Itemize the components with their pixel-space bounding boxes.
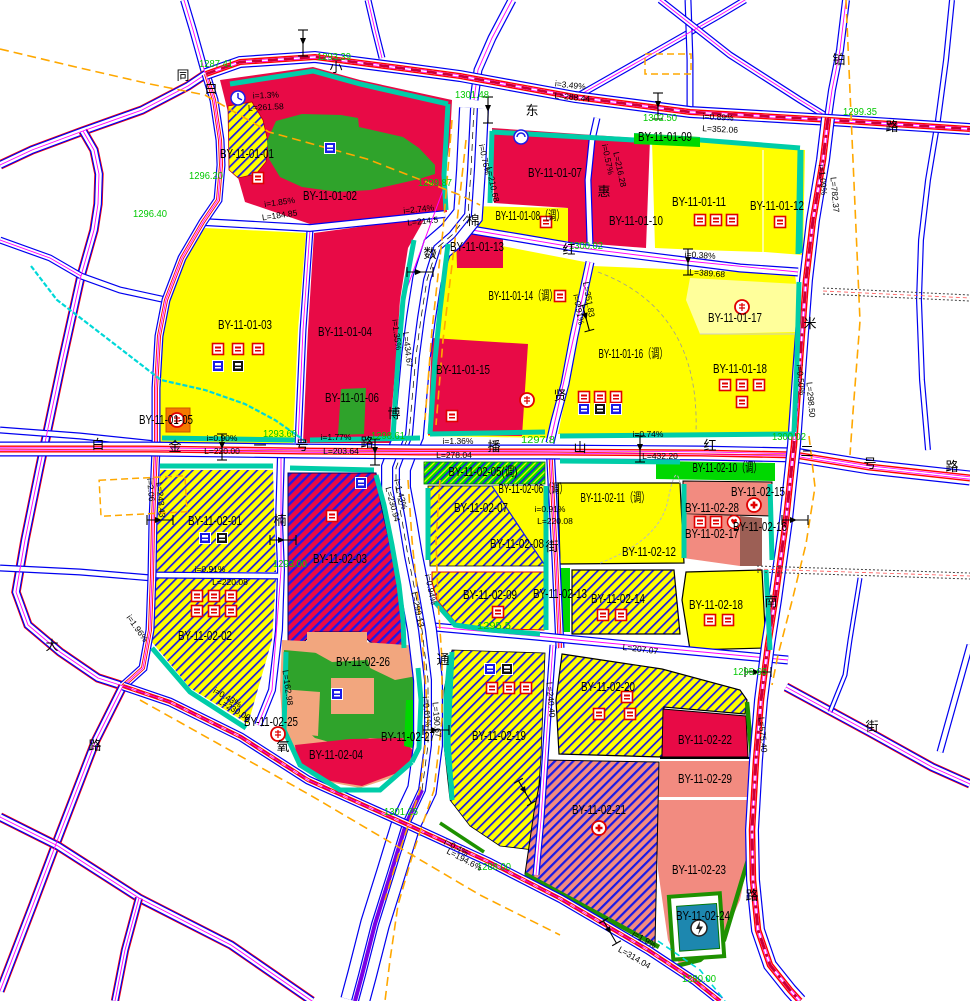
svg-text:BY-11-02-18: BY-11-02-18 — [689, 597, 743, 612]
svg-text:路: 路 — [88, 738, 101, 753]
svg-text:路: 路 — [360, 435, 373, 450]
svg-text:i=1.36%: i=1.36% — [443, 436, 474, 446]
svg-text:L=432.20: L=432.20 — [642, 451, 678, 461]
svg-text:铂: 铂 — [832, 52, 845, 67]
svg-text:路: 路 — [745, 888, 758, 903]
svg-text:楠: 楠 — [273, 513, 286, 528]
svg-text:1297.8: 1297.8 — [521, 435, 555, 446]
svg-text:BY-11-02-25: BY-11-02-25 — [244, 714, 298, 729]
svg-text:BY-11-01-13: BY-11-01-13 — [450, 239, 504, 254]
svg-text:BY-11-02-23: BY-11-02-23 — [672, 862, 726, 877]
svg-text:号: 号 — [863, 456, 876, 471]
svg-text:BY-11-01-12: BY-11-01-12 — [750, 198, 804, 213]
svg-text:金: 金 — [168, 439, 181, 454]
svg-text:1296.40: 1296.40 — [133, 209, 167, 220]
svg-text:大: 大 — [45, 638, 58, 653]
svg-text:BY-11-01-04: BY-11-01-04 — [318, 324, 372, 339]
svg-text:白: 白 — [204, 81, 217, 96]
svg-text:BY-11-02-09: BY-11-02-09 — [463, 587, 517, 602]
svg-text:1280.00: 1280.00 — [682, 974, 716, 985]
svg-text:山: 山 — [573, 440, 586, 455]
svg-text:i=0.74%: i=0.74% — [633, 429, 664, 439]
svg-text:BY-11-01-09: BY-11-01-09 — [638, 129, 692, 144]
svg-text:BY-11-01-07: BY-11-01-07 — [528, 165, 582, 180]
svg-text:BY-11-02-15: BY-11-02-15 — [731, 484, 785, 499]
svg-text:BY-11-02-10（调）: BY-11-02-10（调） — [693, 460, 762, 475]
svg-text:BY-11-01-11: BY-11-01-11 — [672, 194, 726, 209]
svg-text:1293.60: 1293.60 — [263, 429, 297, 440]
svg-text:氧: 氧 — [276, 739, 289, 754]
svg-text:1302.50: 1302.50 — [643, 113, 677, 124]
svg-text:BY-11-02-04: BY-11-02-04 — [309, 747, 363, 762]
svg-text:L=220.08: L=220.08 — [212, 577, 248, 587]
svg-text:1301.25: 1301.25 — [384, 807, 418, 818]
svg-text:米: 米 — [803, 316, 816, 331]
svg-text:BY-11-02-27: BY-11-02-27 — [381, 729, 435, 744]
svg-text:BY-11-01-03: BY-11-01-03 — [218, 317, 272, 332]
svg-text:BY-11-01-08（调）: BY-11-01-08（调） — [496, 208, 565, 223]
svg-text:白: 白 — [91, 437, 104, 452]
svg-text:L=203.64: L=203.64 — [323, 446, 359, 456]
svg-text:东: 东 — [525, 103, 538, 118]
svg-text:BY-11-01-18: BY-11-01-18 — [713, 361, 767, 376]
svg-text:i=1.3%: i=1.3% — [252, 89, 279, 100]
svg-text:数: 数 — [423, 246, 436, 261]
svg-text:BY-11-02-12: BY-11-02-12 — [622, 544, 676, 559]
svg-text:BY-11-02-19: BY-11-02-19 — [472, 728, 526, 743]
svg-text:L=261.58: L=261.58 — [248, 101, 284, 113]
svg-text:通: 通 — [436, 652, 449, 667]
svg-text:1296.20: 1296.20 — [189, 171, 223, 182]
svg-text:BY-11-01-15: BY-11-01-15 — [436, 362, 490, 377]
svg-text:BY-11-02-20: BY-11-02-20 — [581, 679, 635, 694]
svg-text:1300.02: 1300.02 — [772, 432, 806, 443]
svg-text:BY-11-02-01: BY-11-02-01 — [188, 513, 242, 528]
svg-text:1287.41: 1287.41 — [199, 59, 233, 70]
svg-text:一: 一 — [253, 438, 266, 453]
svg-text:BY-11-02-26: BY-11-02-26 — [336, 654, 390, 669]
svg-text:BY-11-02-13: BY-11-02-13 — [533, 586, 587, 601]
svg-text:1295.5: 1295.5 — [477, 621, 511, 632]
svg-text:BY-11-01-01: BY-11-01-01 — [220, 146, 274, 161]
svg-text:BY-11-02-16: BY-11-02-16 — [733, 519, 787, 534]
svg-text:BY-11-01-16（调）: BY-11-01-16（调） — [599, 346, 668, 361]
svg-text:路: 路 — [885, 119, 898, 134]
svg-text:BY-11-02-03: BY-11-02-03 — [313, 551, 367, 566]
svg-text:BY-11-01-10: BY-11-01-10 — [609, 213, 663, 228]
svg-text:i=0.89%: i=0.89% — [702, 111, 734, 123]
svg-text:播: 播 — [487, 439, 500, 454]
svg-text:i=0.91%: i=0.91% — [195, 564, 226, 574]
svg-text:BY-11-02-29: BY-11-02-29 — [678, 771, 732, 786]
svg-text:1299.87: 1299.87 — [418, 178, 452, 189]
svg-text:BY-11-01-17: BY-11-01-17 — [708, 310, 762, 325]
svg-text:BY-11-02-06（调）: BY-11-02-06（调） — [499, 481, 568, 496]
svg-text:BY-11-02-11（调）: BY-11-02-11（调） — [581, 490, 650, 505]
svg-text:BY-11-01-14（调）: BY-11-01-14（调） — [489, 288, 558, 303]
svg-text:1295.65: 1295.65 — [733, 667, 767, 678]
svg-text:BY-11-02-14: BY-11-02-14 — [591, 591, 645, 606]
svg-text:三: 三 — [800, 444, 813, 459]
svg-text:i=0.91%: i=0.91% — [535, 504, 566, 514]
svg-text:BY-11-01-02: BY-11-01-02 — [303, 188, 357, 203]
svg-text:红: 红 — [562, 242, 575, 257]
svg-text:贤: 贤 — [553, 388, 566, 403]
svg-text:BY-11-01-05: BY-11-01-05 — [139, 412, 193, 427]
svg-text:BY-11-02-05(调): BY-11-02-05(调) — [449, 464, 518, 479]
svg-text:1298.61: 1298.61 — [371, 431, 405, 442]
svg-text:1301.48: 1301.48 — [455, 90, 489, 101]
svg-text:BY-11-02-21: BY-11-02-21 — [572, 802, 626, 817]
svg-text:街: 街 — [865, 719, 878, 734]
svg-text:BY-11-02-07: BY-11-02-07 — [454, 500, 508, 515]
svg-text:1293.00: 1293.00 — [273, 559, 307, 570]
svg-text:小: 小 — [329, 60, 342, 75]
svg-text:L=278.04: L=278.04 — [436, 450, 472, 460]
svg-text:BY-11-02-17: BY-11-02-17 — [685, 526, 739, 541]
svg-text:同: 同 — [176, 68, 189, 83]
svg-text:南: 南 — [764, 594, 777, 609]
svg-text:L=352.06: L=352.06 — [702, 123, 738, 135]
svg-text:棉: 棉 — [466, 213, 479, 228]
svg-text:BY-11-02-28: BY-11-02-28 — [685, 500, 739, 515]
svg-text:惠: 惠 — [597, 184, 610, 199]
svg-text:BY-11-02-24: BY-11-02-24 — [676, 908, 730, 923]
svg-text:L=220.00: L=220.00 — [204, 446, 240, 456]
svg-text:BY-11-02-08: BY-11-02-08 — [490, 536, 544, 551]
svg-text:路: 路 — [945, 459, 958, 474]
svg-text:i=0.90%: i=0.90% — [207, 433, 238, 443]
svg-text:BY-11-02-02: BY-11-02-02 — [178, 628, 232, 643]
svg-text:L=220.08: L=220.08 — [537, 516, 573, 526]
svg-text:BY-11-02-22: BY-11-02-22 — [678, 732, 732, 747]
svg-text:号: 号 — [295, 438, 308, 453]
svg-text:街: 街 — [545, 539, 558, 554]
svg-text:1299.35: 1299.35 — [843, 107, 877, 118]
svg-text:i=1.77%: i=1.77% — [321, 432, 352, 442]
svg-text:红: 红 — [703, 438, 716, 453]
svg-text:BY-11-01-06: BY-11-01-06 — [325, 390, 379, 405]
svg-text:博: 博 — [387, 406, 400, 421]
